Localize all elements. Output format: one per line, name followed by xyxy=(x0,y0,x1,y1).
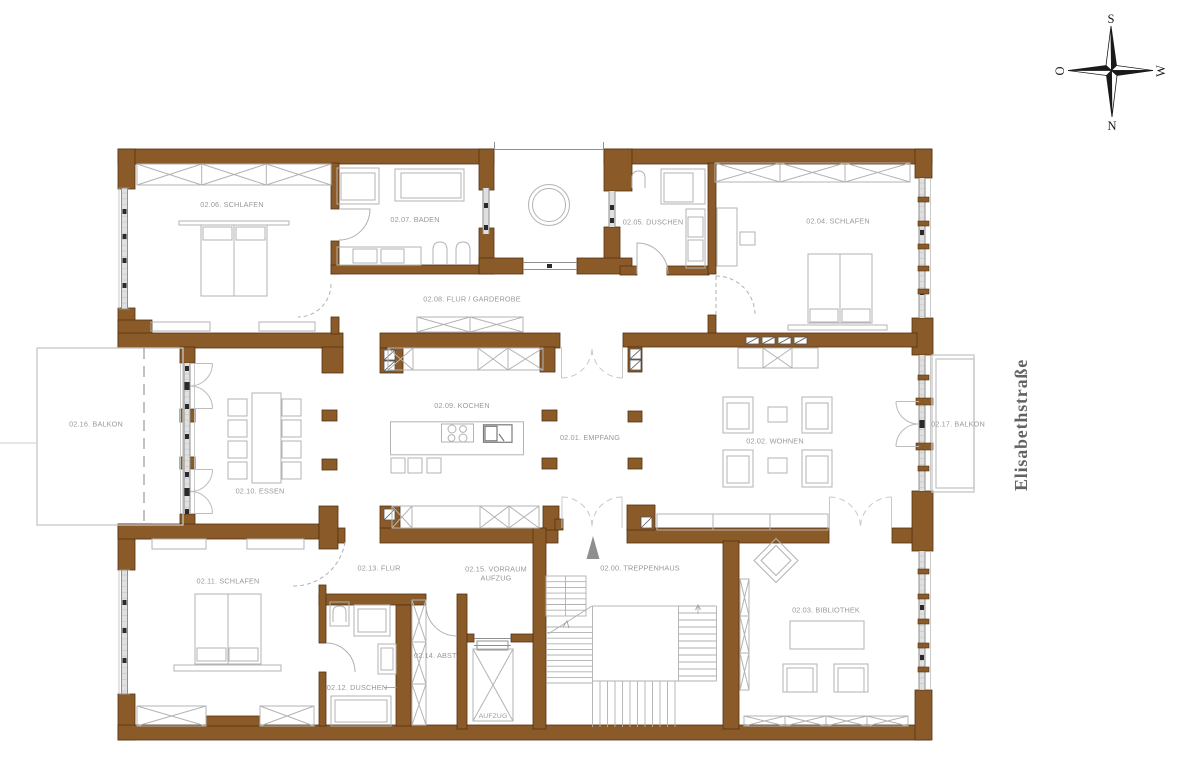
svg-text:O: O xyxy=(1053,66,1067,75)
svg-text:S: S xyxy=(1108,12,1115,26)
svg-text:02.13. FLUR: 02.13. FLUR xyxy=(357,564,400,573)
svg-text:AUFZUG: AUFZUG xyxy=(481,574,512,583)
svg-text:02.16. BALKON: 02.16. BALKON xyxy=(69,420,123,429)
svg-text:02.00. TREPPENHAUS: 02.00. TREPPENHAUS xyxy=(600,564,680,573)
svg-text:02.12. DUSCHEN: 02.12. DUSCHEN xyxy=(327,683,388,692)
svg-text:02.09. KOCHEN: 02.09. KOCHEN xyxy=(434,401,489,410)
svg-text:W: W xyxy=(1154,65,1168,77)
svg-text:02.07. BADEN: 02.07. BADEN xyxy=(390,215,439,224)
svg-text:02.04. SCHLAFEN: 02.04. SCHLAFEN xyxy=(806,217,870,226)
svg-text:AUFZUG: AUFZUG xyxy=(479,713,508,720)
svg-text:N: N xyxy=(1107,119,1116,133)
svg-text:02.06. SCHLAFEN: 02.06. SCHLAFEN xyxy=(200,200,264,209)
svg-text:02.17. BALKON: 02.17. BALKON xyxy=(931,420,985,429)
svg-text:02.02. WOHNEN: 02.02. WOHNEN xyxy=(746,437,804,446)
svg-text:02.14. ABST.: 02.14. ABST. xyxy=(414,651,458,660)
svg-text:02.05. DUSCHEN: 02.05. DUSCHEN xyxy=(623,218,684,227)
svg-text:02.11. SCHLAFEN: 02.11. SCHLAFEN xyxy=(197,577,260,586)
svg-text:02.03. BIBLIOTHEK: 02.03. BIBLIOTHEK xyxy=(792,606,860,615)
svg-text:02.08. FLUR / GARDEROBE: 02.08. FLUR / GARDEROBE xyxy=(423,295,521,304)
svg-text:02.15. VORRAUM: 02.15. VORRAUM xyxy=(465,565,527,574)
svg-text:02.10. ESSEN: 02.10. ESSEN xyxy=(236,487,285,496)
svg-text:02.01. EMPFANG: 02.01. EMPFANG xyxy=(560,433,620,442)
svg-text:Elisabethstraße: Elisabethstraße xyxy=(1011,359,1031,491)
